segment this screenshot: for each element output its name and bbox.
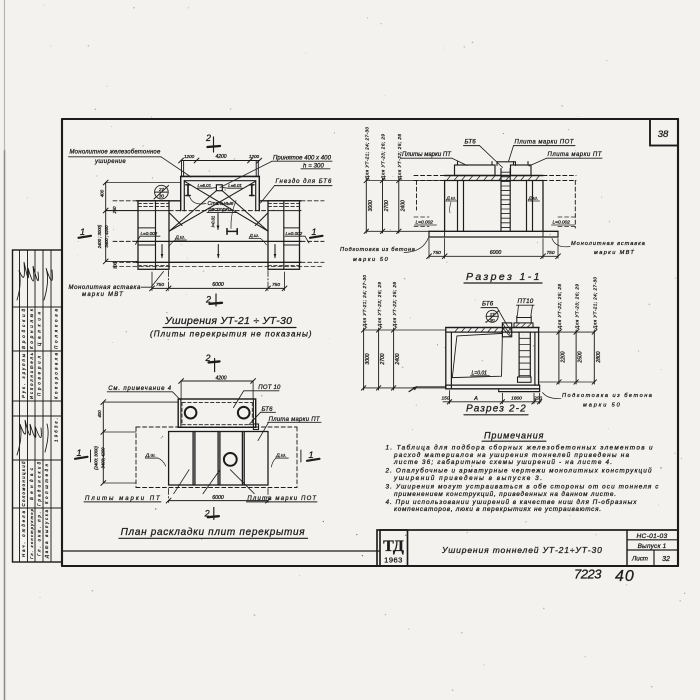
svg-text:1: 1 [309,450,314,460]
svg-text:250: 250 [112,206,117,215]
svg-text:ПТ10: ПТ10 [518,298,534,305]
svg-text:6000: 6000 [212,495,224,501]
svg-text:Корнилюк: Корнилюк [29,308,34,349]
svg-text:Плита марки ПТ: Плита марки ПТ [548,152,603,158]
svg-text:Лист: Лист [631,556,648,563]
svg-text:Уширения УТ-21 ÷ УТ-30: Уширения УТ-21 ÷ УТ-30 [164,315,293,327]
svg-text:БТ6: БТ6 [465,139,477,146]
svg-text:Для УТ-21; 24; 27-30: Для УТ-21; 24; 27-30 [362,275,367,328]
svg-text:2200: 2200 [561,351,567,363]
svg-text:марки МВТ: марки МВТ [82,292,124,298]
svg-text:См. примечание 4: См. примечание 4 [108,386,172,392]
svg-text:750: 750 [433,250,441,256]
svg-text:Выпуск 1: Выпуск 1 [638,543,667,550]
svg-text:Плиты марки ПТ: Плиты марки ПТ [85,496,161,502]
svg-text:1200: 1200 [184,154,195,159]
svg-text:150: 150 [441,396,449,402]
svg-text:6000: 6000 [212,282,224,288]
svg-text:Д.ш.: Д.ш. [175,235,186,240]
svg-text:750: 750 [156,282,164,288]
svg-text:Плита марки ПОТ: Плита марки ПОТ [515,140,575,146]
svg-text:Гнездо для БТ6: Гнездо для БТ6 [276,179,332,185]
svg-text:2400 ; 3000): 2400 ; 3000) [97,224,102,249]
svg-text:марки МВТ: марки МВТ [594,250,634,256]
svg-text:Д.ш.: Д.ш. [446,196,457,201]
svg-text:400: 400 [100,189,105,197]
svg-text:L=0.002: L=0.002 [141,231,158,236]
svg-text:2700: 2700 [384,200,390,212]
svg-text:А: А [473,396,478,402]
svg-text:Уширения тоннелей УТ-21÷УТ-3: Уширения тоннелей УТ-21÷УТ-30 [441,545,602,555]
svg-text:1: 1 [312,227,317,237]
svg-text:3400; 4200: 3400; 4200 [100,447,105,469]
svg-text:ТД: ТД [383,538,404,555]
svg-text:Для УТ-22; 25; 28: Для УТ-22; 25; 28 [392,282,397,328]
svg-text:2400: 2400 [400,200,406,212]
svg-text:4. При использовании уширени: 4. При использовании уширений в качестве… [386,498,638,506]
svg-text:Для УТ-23; 26; 29: Для УТ-23; 26; 29 [381,134,386,180]
svg-text:30: 30 [159,194,164,199]
svg-text:L=0.002: L=0.002 [286,231,303,236]
svg-text:Монолитное железобетонное: Монолитное железобетонное [70,150,161,156]
svg-text:Д.ш.: Д.ш. [249,233,260,238]
svg-text:БТ6: БТ6 [482,301,494,308]
svg-text:2400: 2400 [395,353,401,365]
svg-text:листе 36; габаритные схемы: листе 36; габаритные схемы уширений - на… [393,458,612,466]
svg-text:Разрез 1-1: Разрез 1-1 [466,271,540,283]
svg-text:3000: 3000 [368,200,374,211]
svg-text:НС-01-03: НС-01-03 [637,533,668,540]
svg-text:27: 27 [158,187,164,192]
svg-text:(2400; 3000): (2400; 3000) [94,446,99,470]
svg-text:компенсаторов, люки в перек: компенсаторов, люки в перекрытиях не уст… [394,506,601,513]
svg-text:300: 300 [113,261,118,269]
svg-text:1: 1 [77,448,82,458]
svg-text:4200: 4200 [215,375,226,381]
svg-text:3400 ; 4200: 3400 ; 4200 [104,225,109,248]
svg-text:Разрез 2-2: Разрез 2-2 [466,404,526,415]
svg-text:1200: 1200 [249,154,260,159]
svg-text:1: 1 [80,227,85,237]
svg-text:1. Таблица для подбора сбор: 1. Таблица для подбора сборных железобет… [386,444,653,452]
svg-text:Плита марки ПОТ: Плита марки ПОТ [247,496,317,502]
svg-text:2700: 2700 [380,353,386,365]
svg-text:4200: 4200 [215,154,226,160]
svg-text:Для УТ-23; 26; 29: Для УТ-23; 26; 29 [574,284,579,330]
svg-text:Плиты марки ПТ: Плиты марки ПТ [402,152,452,158]
svg-text:уширение: уширение [94,159,126,165]
svg-text:3000: 3000 [365,353,371,364]
svg-text:2. Опалубочные и арматурные: 2. Опалубочные и арматурные чертежи моно… [385,467,652,475]
svg-text:Исполнитель: Исполнитель [29,353,34,399]
svg-text:38: 38 [658,129,669,140]
svg-text:1963: 1963 [384,556,403,565]
svg-text:400: 400 [97,410,102,418]
svg-text:(Плиты перекрытия не показа: (Плиты перекрытия не показаны) [150,330,312,339]
svg-text:2500: 2500 [578,351,584,363]
svg-text:Для УТ-21; 24; 27-30: Для УТ-21; 24; 27-30 [593,277,598,330]
svg-text:План раскладки плит перекры: План раскладки плит перекрытия [121,527,306,538]
svg-text:Монолитная вставка: Монолитная вставка [571,241,645,247]
svg-text:3. Уширения могут устраивать: 3. Уширения могут устраиваться в обе сто… [386,483,660,491]
svg-text:применением конструкций, при: применением конструкций, приведенных на … [394,490,616,498]
svg-text:750: 750 [272,282,280,288]
svg-text:расход материалов на уширен: расход материалов на уширения тоннелей п… [393,451,629,459]
svg-text:Принятое 400 х 400: Принятое 400 х 400 [273,156,332,162]
svg-text:i=0.01: i=0.01 [211,216,216,228]
svg-text:уширений приведены в выпуск: уширений приведены в выпуске 3. [393,474,542,482]
svg-text:Стальные: Стальные [208,201,234,207]
svg-text:L=6.01: L=6.01 [198,183,212,188]
svg-text:750: 750 [546,250,554,256]
svg-text:27: 27 [489,311,495,316]
svg-text:6000: 6000 [490,250,502,256]
svg-text:Для УТ-22; 25; 28: Для УТ-22; 25; 28 [557,284,562,330]
svg-text:Подготовка из бетона: Подготовка из бетона [340,247,415,253]
svg-text:2800: 2800 [596,351,602,363]
svg-text:Д.ш.: Д.ш. [528,196,539,201]
svg-text:40: 40 [615,568,635,585]
svg-text:ПОТ 10: ПОТ 10 [258,385,281,391]
svg-text:32: 32 [662,556,670,563]
svg-text:2: 2 [205,133,211,143]
svg-text:1800: 1800 [511,396,522,402]
svg-text:Монолитная вставка: Монолитная вставка [69,285,141,291]
svg-text:Для УТ-21; 24; 27-30: Для УТ-21; 24; 27-30 [365,127,370,180]
svg-text:7223: 7223 [574,567,603,582]
svg-text:Для УТ-23; 26; 29: Для УТ-23; 26; 29 [377,282,382,328]
svg-text:L=6.01: L=6.01 [228,183,242,188]
svg-text:Примечания: Примечания [484,431,544,441]
